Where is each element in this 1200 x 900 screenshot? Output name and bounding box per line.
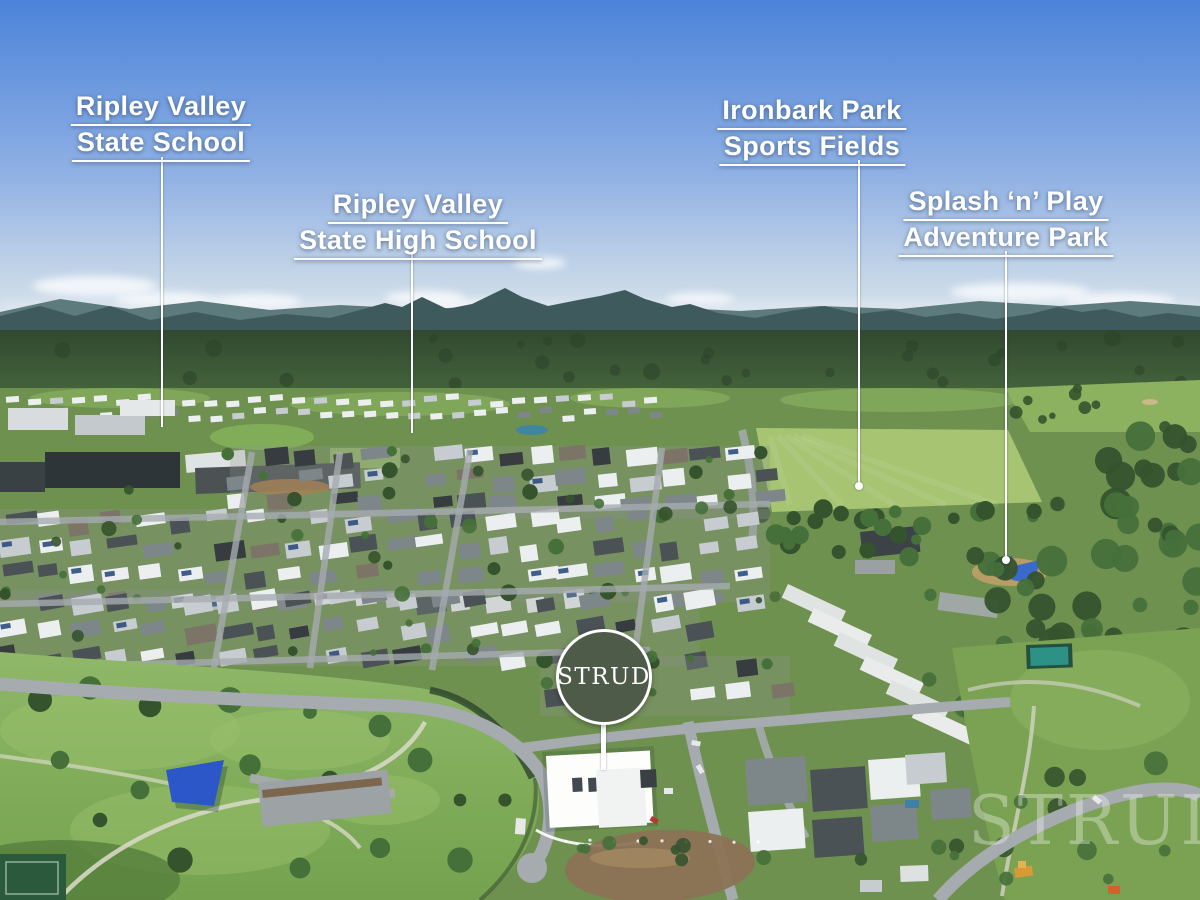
label-line: Sports Fields	[719, 132, 905, 166]
leader-line-splash-n-play	[1005, 251, 1007, 560]
label-splash-n-play-adventure-park: Splash ‘n’ Play Adventure Park	[898, 187, 1113, 257]
strud-logo-text: STRUD	[557, 664, 651, 690]
label-line: Ripley Valley	[328, 190, 508, 224]
label-line: Adventure Park	[898, 223, 1113, 257]
leader-dot-splash-n-play	[1002, 556, 1010, 564]
label-line: State School	[72, 128, 250, 162]
label-line: Ironbark Park	[717, 96, 906, 130]
strud-logo-badge: STRUD	[556, 629, 652, 725]
label-line: Ripley Valley	[71, 92, 251, 126]
aerial-photo-stage: Ripley Valley State School Ripley Valley…	[0, 0, 1200, 900]
logo-badge-stem	[601, 722, 606, 770]
label-line: State High School	[294, 226, 542, 260]
leader-dot-ironbark-park	[855, 482, 863, 490]
leader-line-high-school	[411, 252, 413, 433]
label-ironbark-park-sports-fields: Ironbark Park Sports Fields	[717, 96, 906, 166]
label-ripley-valley-state-high-school: Ripley Valley State High School	[294, 190, 542, 260]
label-ripley-valley-state-school: Ripley Valley State School	[71, 92, 251, 162]
label-line: Splash ‘n’ Play	[903, 187, 1108, 221]
leader-line-ironbark-park	[858, 160, 860, 486]
leader-line-state-school	[161, 157, 163, 427]
